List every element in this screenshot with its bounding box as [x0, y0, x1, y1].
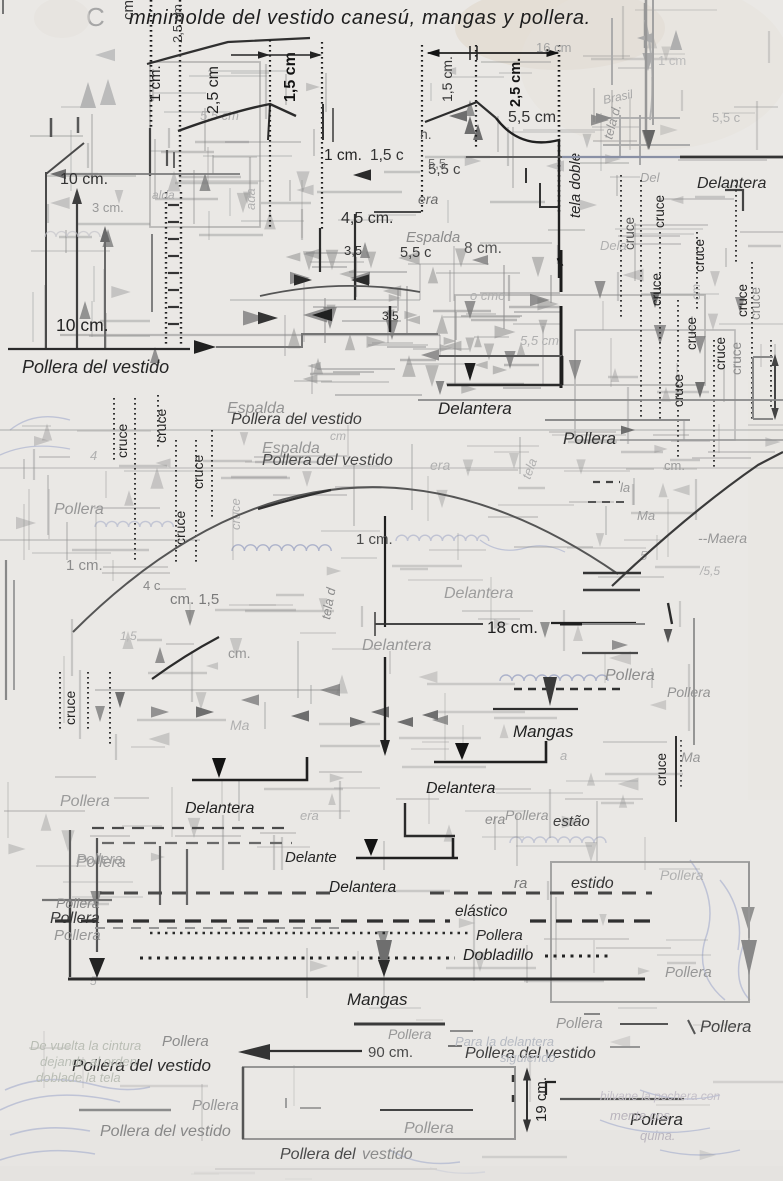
svg-text:doblade la tela: doblade la tela	[36, 1070, 121, 1085]
svg-text:hilvane la pochera con: hilvane la pochera con	[600, 1089, 720, 1103]
svg-text:mente cos: mente cos	[610, 1108, 670, 1123]
svg-text:Para la delantera: Para la delantera	[455, 1034, 554, 1049]
svg-text:quina.: quina.	[640, 1128, 675, 1143]
svg-text:De vuelta la cintura: De vuelta la cintura	[30, 1038, 141, 1053]
svg-text:dejando al orden: dejando al orden	[40, 1054, 137, 1069]
svg-text:siguiendo: siguiendo	[500, 1050, 556, 1065]
